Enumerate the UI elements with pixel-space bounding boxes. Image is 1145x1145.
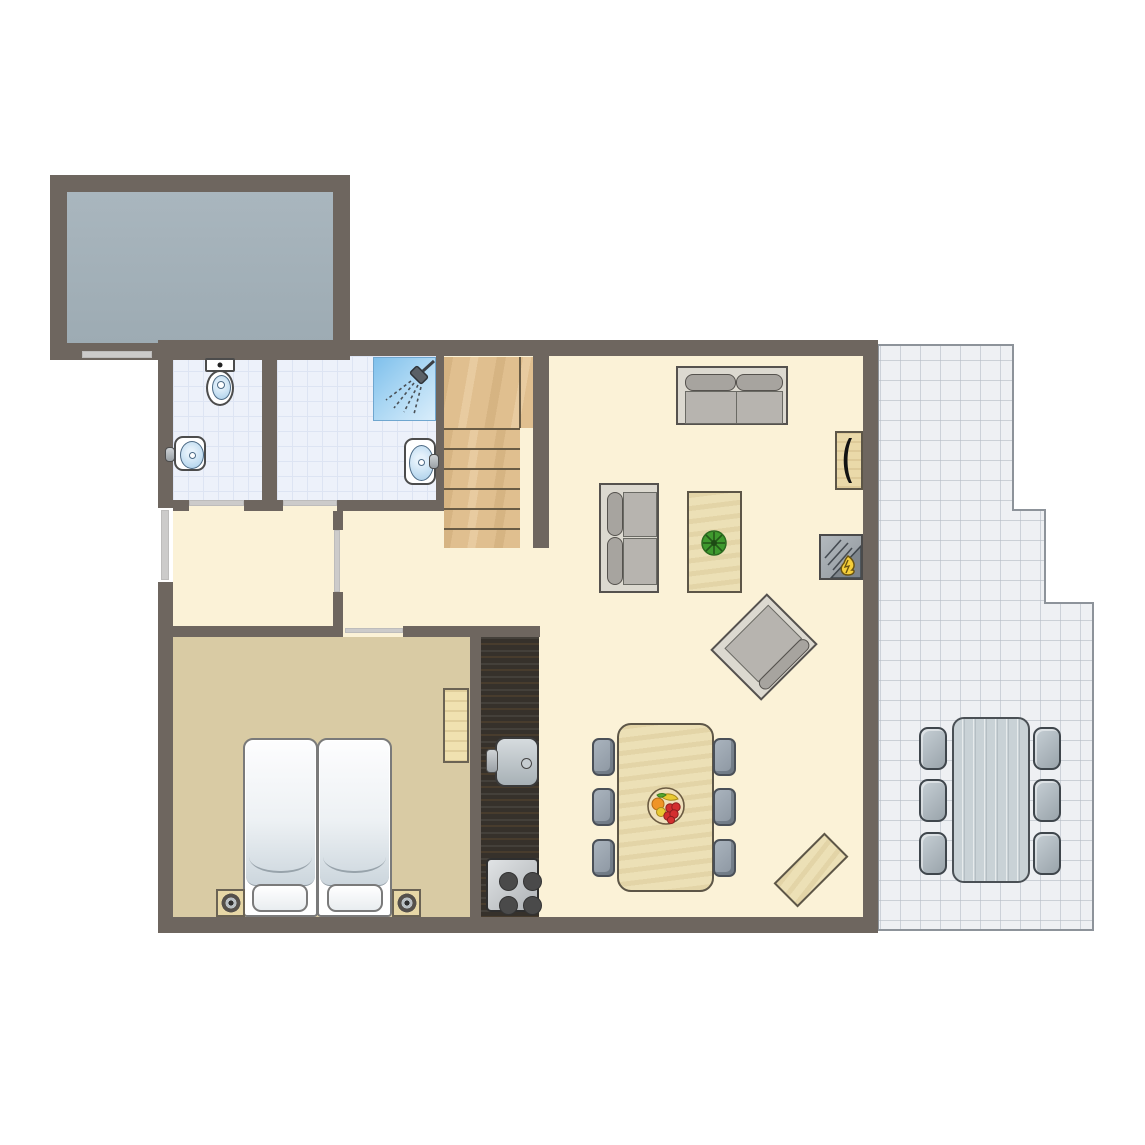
wall-bath-bottom-c [337, 500, 444, 511]
shower-head-icon [374, 358, 437, 422]
duvet-fold [249, 851, 312, 873]
sofa-back-cushion [685, 374, 736, 391]
wall-stairs-right [533, 340, 549, 548]
duvet-fold [323, 851, 386, 873]
dining-chair [713, 839, 736, 877]
wc-washbasin [174, 436, 206, 471]
burner-icon [523, 896, 542, 915]
sofa-back-cushion [607, 537, 623, 585]
wall-main-bottom [158, 917, 878, 933]
bedroom-shelf [443, 688, 469, 763]
wall-bath-bottom-b [244, 500, 283, 511]
stair-step [444, 488, 520, 508]
bedside-lamp-icon [221, 894, 240, 913]
door-marker-bedroom [345, 628, 403, 633]
bedside-lamp-icon [397, 894, 416, 913]
sink-drain-icon [521, 758, 532, 769]
wall-balcony-left [50, 192, 67, 343]
dining-chair [592, 839, 615, 877]
fruit-bowl-icon [647, 787, 685, 825]
stair-landing-divider [519, 357, 521, 428]
stair-step [444, 528, 520, 548]
shower-cabin [373, 357, 436, 421]
duvet [320, 741, 389, 886]
wall-balcony-right [333, 192, 350, 343]
fireplace-stove [819, 534, 863, 580]
sofa-back-cushion [607, 492, 623, 536]
door-marker-hall [334, 530, 340, 592]
door-marker-entrance [161, 510, 169, 580]
pillow-right [327, 884, 383, 912]
floor-plan [0, 0, 1145, 1145]
outdoor-chair [1033, 727, 1061, 770]
wall-hall-divider-a [333, 511, 343, 530]
toilet-button-icon [218, 363, 223, 368]
stair-step [444, 508, 520, 528]
wall-bedroom-top-a [158, 626, 343, 637]
wall-main-right [863, 340, 878, 933]
nightstand-left [216, 889, 245, 917]
door-marker-wc [189, 500, 244, 506]
wall-bath-bottom-a [173, 500, 189, 511]
door-marker-bathroom [283, 500, 337, 506]
washbasin-drain-icon [189, 452, 196, 459]
sofa-two-seat-top [676, 366, 788, 425]
tv-sideboard [835, 431, 863, 490]
nightstand-right [392, 889, 421, 917]
burner-icon [499, 872, 518, 891]
toilet-bowl [206, 370, 234, 406]
sofa-seat-cushion [685, 391, 737, 424]
wall-main-left-upper [158, 340, 173, 508]
toilet-drain-icon [217, 381, 225, 389]
sofa-two-seat-left [599, 483, 659, 593]
wall-kitchen-side [470, 637, 481, 917]
burner-icon [523, 872, 542, 891]
wall-bedroom-top-b [403, 626, 540, 637]
wall-bath-stairs-divider [436, 340, 444, 511]
balcony-floor [67, 192, 333, 343]
sofa-seat-cushion [736, 391, 783, 424]
wc-faucet-icon [165, 447, 175, 462]
wall-hall-divider-b [333, 592, 343, 626]
wall-balcony-top [50, 175, 350, 192]
washbasin-drain-icon [418, 459, 425, 466]
dining-chair [592, 788, 615, 826]
stair-step [444, 448, 520, 468]
outdoor-chair [1033, 832, 1061, 875]
plant-icon [701, 530, 727, 556]
outdoor-chair [1033, 779, 1061, 822]
burner-icon [499, 896, 518, 915]
dining-chair [592, 738, 615, 776]
outdoor-chair [919, 832, 947, 875]
bath-faucet-icon [429, 454, 439, 469]
outdoor-dining-table [952, 717, 1030, 883]
sofa-seat-cushion [623, 538, 657, 585]
stair-step [444, 428, 520, 448]
duvet [246, 741, 315, 886]
kitchen-sink [495, 737, 539, 787]
stair-step [444, 468, 520, 488]
sofa-seat-cushion [623, 492, 657, 537]
stove-top [486, 858, 539, 912]
wall-wc-bath-divider [262, 340, 277, 511]
outdoor-chair [919, 779, 947, 822]
outdoor-chair [919, 727, 947, 770]
door-marker-balcony [82, 351, 152, 358]
pillow-left [252, 884, 308, 912]
sofa-back-cushion [736, 374, 783, 391]
dining-chair [713, 738, 736, 776]
kitchen-faucet-icon [486, 749, 498, 773]
dining-chair [713, 788, 736, 826]
